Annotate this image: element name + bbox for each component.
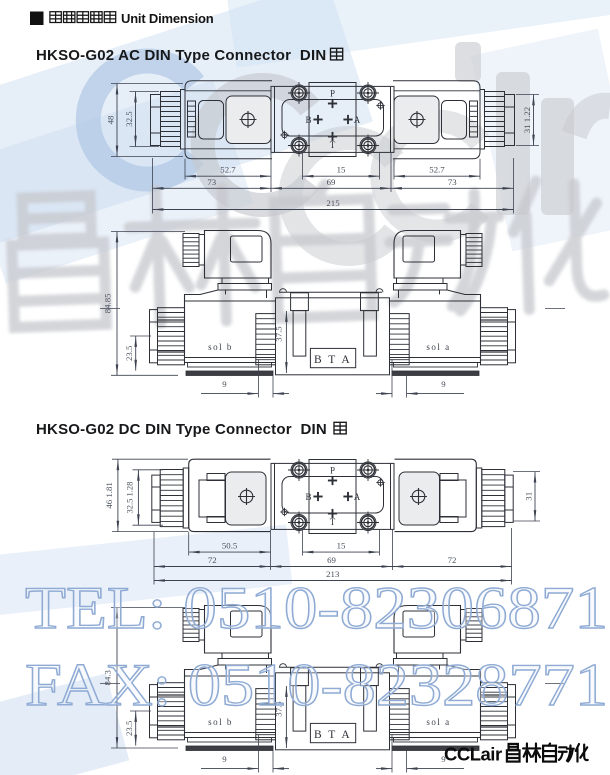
- svg-text:15: 15: [337, 541, 346, 551]
- svg-text:23.5: 23.5: [124, 345, 134, 361]
- svg-text:9: 9: [441, 379, 446, 389]
- svg-text:TEL: 0510-82306871: TEL: 0510-82306871: [25, 575, 608, 641]
- svg-text:31: 31: [524, 492, 534, 501]
- svg-text:A: A: [354, 115, 361, 125]
- svg-text:69: 69: [327, 177, 336, 187]
- svg-text:15: 15: [337, 165, 346, 175]
- svg-text:46 1.81: 46 1.81: [104, 482, 114, 508]
- svg-text:72: 72: [448, 555, 457, 565]
- svg-text:32.5: 32.5: [124, 111, 134, 127]
- svg-text:CCLair: CCLair: [444, 744, 502, 765]
- svg-text:sol b: sol b: [208, 342, 233, 352]
- svg-text:52.7: 52.7: [220, 165, 236, 175]
- svg-text:69: 69: [327, 555, 336, 565]
- svg-text:72: 72: [208, 555, 217, 565]
- svg-text:HKSO-G02 AC DIN Type Connector: HKSO-G02 AC DIN Type Connector DIN: [36, 47, 326, 64]
- svg-text:P: P: [330, 89, 335, 99]
- svg-text:9: 9: [222, 379, 227, 389]
- svg-text:48: 48: [106, 115, 116, 124]
- svg-text:HKSO-G02 DC DIN Type Connector: HKSO-G02 DC DIN Type Connector DIN: [36, 421, 327, 438]
- svg-text:FAX: 0510-82328771: FAX: 0510-82328771: [25, 652, 608, 718]
- svg-text:32.5 1.28: 32.5 1.28: [124, 482, 134, 514]
- svg-text:T: T: [330, 140, 336, 150]
- svg-text:73: 73: [448, 177, 457, 187]
- svg-text:73: 73: [207, 177, 216, 187]
- svg-text:Unit Dimension: Unit Dimension: [121, 11, 214, 26]
- svg-text:37.5: 37.5: [274, 326, 284, 342]
- svg-text:B: B: [305, 115, 311, 125]
- svg-text:52.7: 52.7: [429, 165, 445, 175]
- svg-text:215: 215: [326, 198, 340, 208]
- svg-text:B T A: B T A: [314, 354, 352, 366]
- svg-text:sol a: sol a: [426, 342, 450, 352]
- svg-text:50.5: 50.5: [222, 541, 238, 551]
- svg-text:31 1.22: 31 1.22: [522, 107, 532, 133]
- svg-text:84.85: 84.85: [103, 293, 113, 313]
